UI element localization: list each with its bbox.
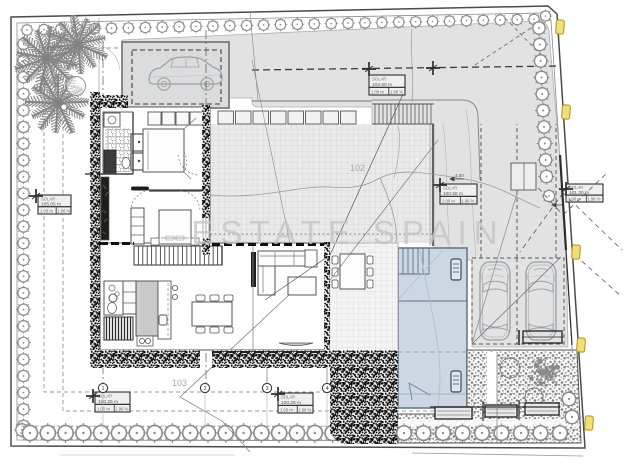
svg-text:1: 1 xyxy=(101,386,104,392)
svg-text:2: 2 xyxy=(203,386,206,392)
svg-text:SOLAR: SOLAR xyxy=(443,186,457,191)
svg-text:3: 3 xyxy=(265,386,268,392)
svg-text:SOLAR: SOLAR xyxy=(98,394,112,399)
svg-text:O84: O84 xyxy=(71,84,79,89)
svg-text:SOLAR: SOLAR xyxy=(281,395,295,400)
svg-text:1.96 %: 1.96 % xyxy=(298,407,311,412)
svg-text:ESTATE SPAIN: ESTATE SPAIN xyxy=(191,214,504,251)
svg-text:1.00 m: 1.00 m xyxy=(280,407,293,412)
svg-text:1.96 %: 1.96 % xyxy=(461,198,474,203)
svg-text:1.00 m: 1.00 m xyxy=(442,198,455,203)
svg-text:4.50: 4.50 xyxy=(455,173,464,178)
svg-text:103: 103 xyxy=(172,378,187,388)
svg-text:1.00 m: 1.00 m xyxy=(97,406,110,411)
svg-text:1.00 m: 1.00 m xyxy=(371,89,384,94)
svg-text:SOLAR: SOLAR xyxy=(372,77,386,82)
svg-text:1.00 m: 1.00 m xyxy=(40,208,53,213)
svg-text:100.25 m: 100.25 m xyxy=(281,400,301,406)
svg-text:1.96 %: 1.96 % xyxy=(390,89,403,94)
svg-text:100.25 m: 100.25 m xyxy=(98,399,118,405)
svg-text:105.05 m: 105.05 m xyxy=(41,201,61,207)
svg-text:SOLAR: SOLAR xyxy=(41,196,55,201)
svg-text:1.96 %: 1.96 % xyxy=(57,208,70,213)
svg-text:102.60 m: 102.60 m xyxy=(372,82,392,88)
svg-text:102: 102 xyxy=(350,163,365,173)
svg-text:1.96 %: 1.96 % xyxy=(587,197,600,202)
svg-text:1.96 %: 1.96 % xyxy=(115,406,128,411)
svg-text:100.58 m: 100.58 m xyxy=(443,191,463,197)
svg-text:4: 4 xyxy=(325,386,328,392)
